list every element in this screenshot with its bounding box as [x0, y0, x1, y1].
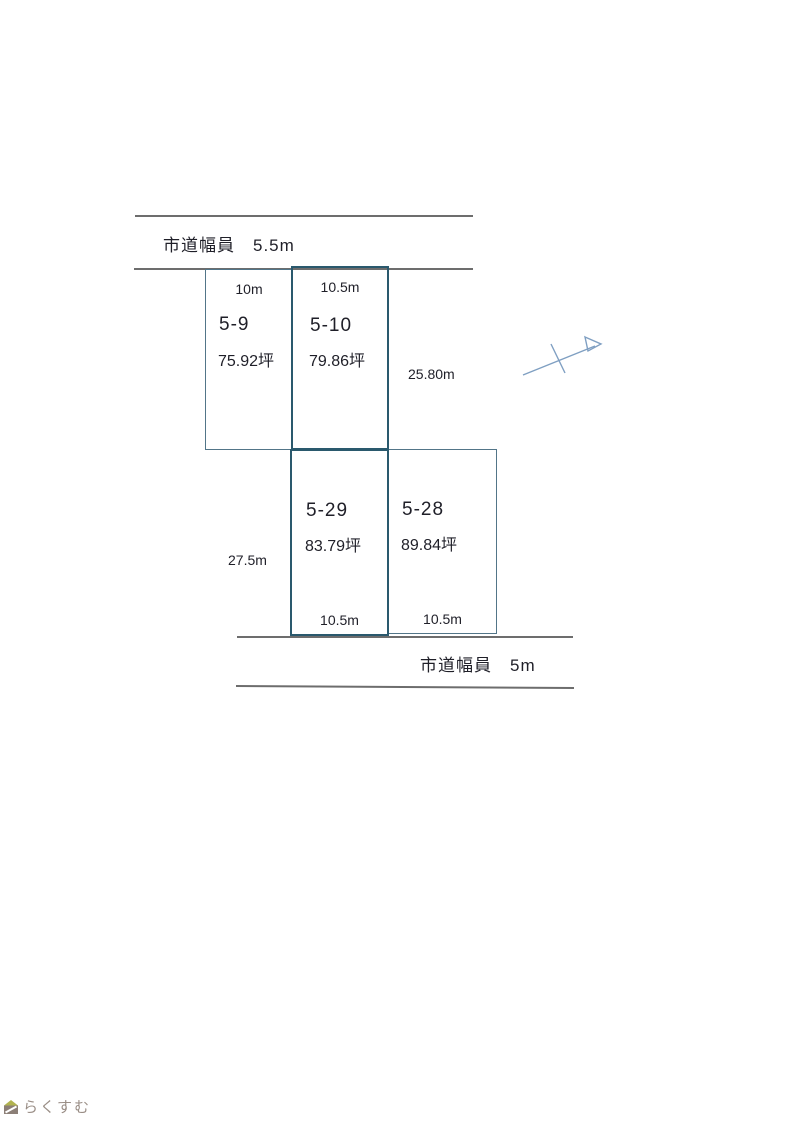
- plot-5-29: 5-29 83.79坪 10.5m: [290, 449, 389, 636]
- plot-5-28-frontage-label: 10.5m: [389, 611, 496, 627]
- plot-5-29-area-label: 83.79坪: [305, 532, 361, 556]
- house-icon: [4, 1100, 18, 1114]
- bottom-road-width-label: 市道幅員 5m: [420, 651, 536, 676]
- rakusumu-logo: らくすむ: [4, 1096, 91, 1117]
- bottom-road-lower-edge-line: [236, 685, 574, 689]
- top-road-upper-edge-line: [135, 215, 473, 217]
- bottom-road-upper-edge-line: [237, 636, 573, 638]
- left-depth-dimension-label: 27.5m: [228, 552, 267, 568]
- plot-5-28-id-label: 5-28: [402, 499, 444, 521]
- plot-5-29-id-label: 5-29: [306, 500, 348, 522]
- plot-5-9-id-label: 5-9: [219, 314, 249, 336]
- plot-5-29-frontage-label: 10.5m: [292, 612, 387, 628]
- right-depth-dimension-label: 25.80m: [408, 366, 455, 382]
- plot-5-28-area-label: 89.84坪: [401, 531, 457, 555]
- plot-5-9-area-label: 75.92坪: [218, 347, 274, 371]
- plot-5-10-frontage-label: 10.5m: [293, 279, 387, 295]
- north-arrow-icon: [515, 325, 625, 395]
- land-plot-diagram: 市道幅員 5.5m 10m 5-9 75.92坪 10.5m 5-10 79.8…: [0, 0, 793, 1122]
- plot-5-10-area-label: 79.86坪: [309, 347, 365, 371]
- plot-5-10: 10.5m 5-10 79.86坪: [291, 266, 389, 450]
- plot-5-9-frontage-label: 10m: [206, 281, 292, 297]
- plot-5-28: 5-28 89.84坪 10.5m: [388, 449, 497, 634]
- plot-5-10-id-label: 5-10: [310, 315, 352, 337]
- plot-5-9: 10m 5-9 75.92坪: [205, 269, 293, 450]
- top-road-width-label: 市道幅員 5.5m: [163, 231, 295, 256]
- logo-text: らくすむ: [23, 1096, 91, 1117]
